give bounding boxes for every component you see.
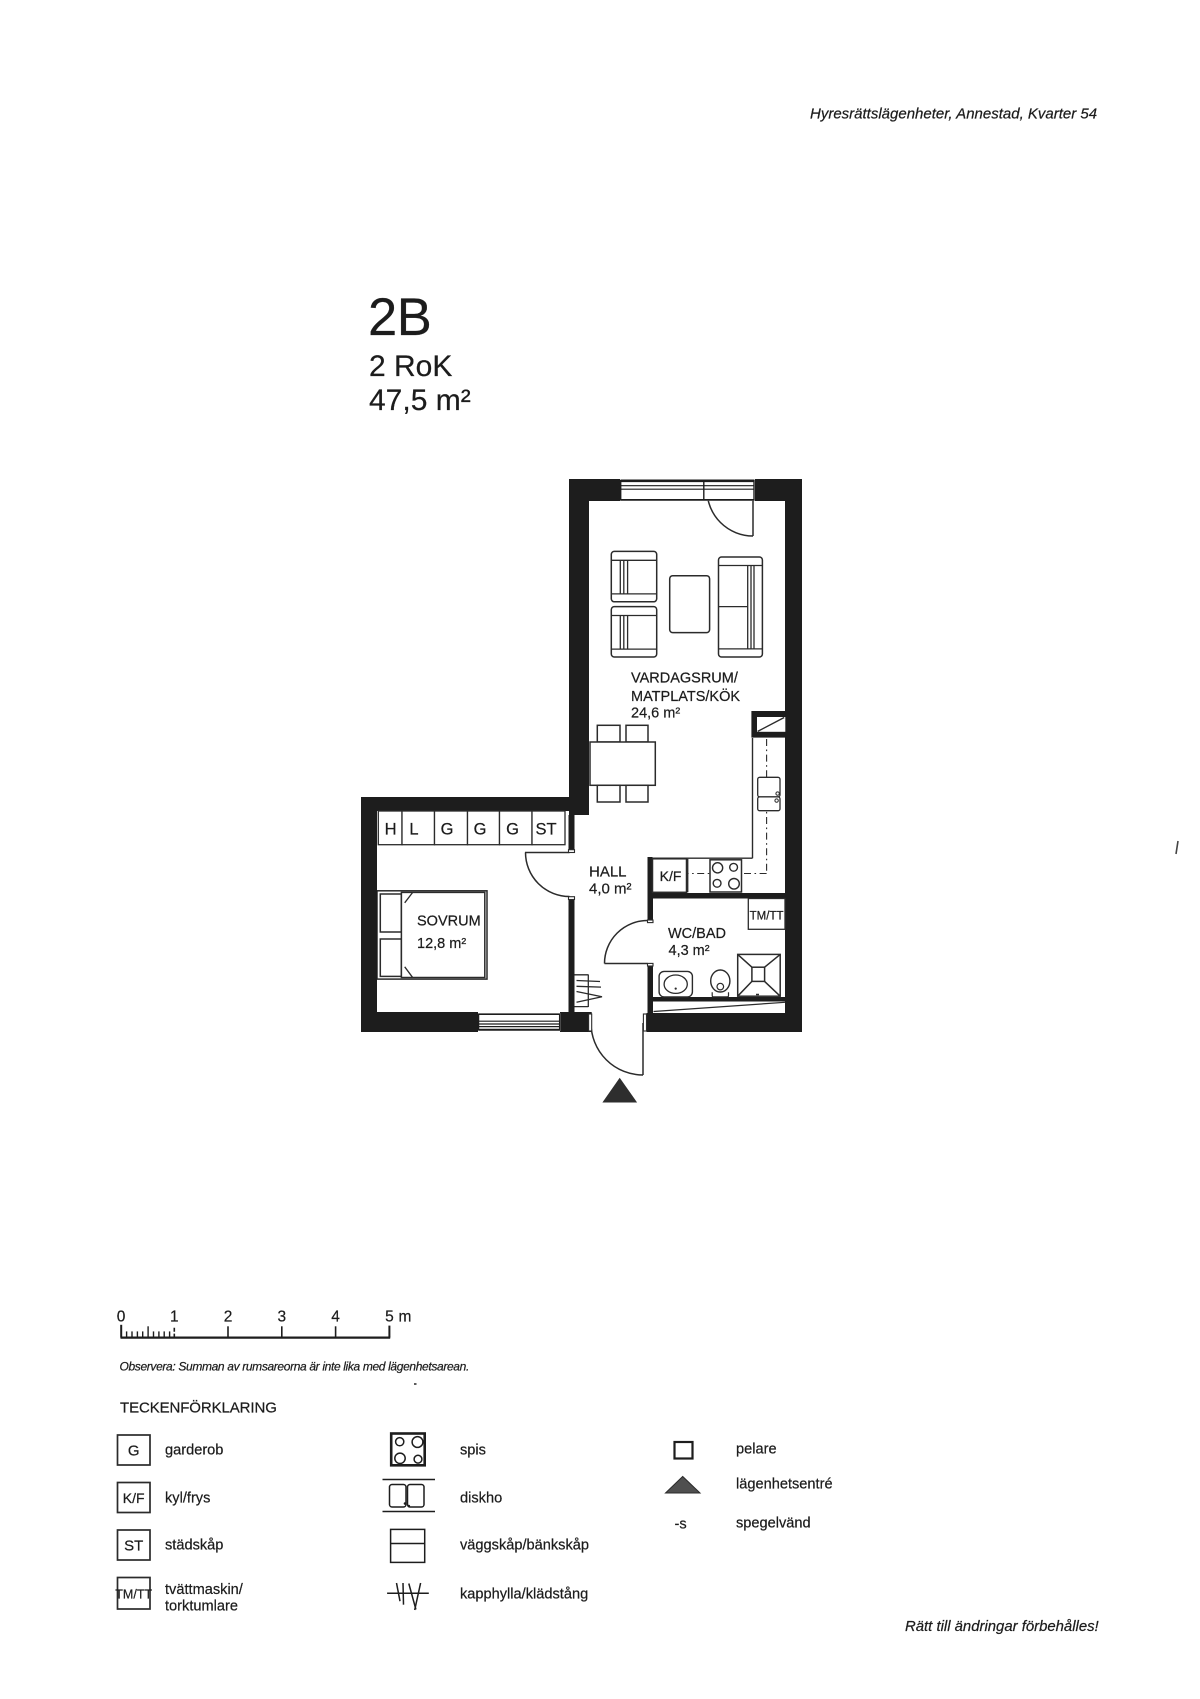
svg-text:12,8 m²: 12,8 m² [417, 936, 466, 952]
svg-text:G: G [506, 821, 519, 839]
svg-text:0: 0 [117, 1309, 126, 1326]
svg-text:G: G [441, 821, 454, 839]
svg-text:4,3 m²: 4,3 m² [669, 943, 710, 959]
svg-text:ST: ST [535, 821, 556, 839]
svg-text:Observera: Summan av rumsareor: Observera: Summan av rumsareorna är inte… [120, 1360, 469, 1374]
svg-text:4: 4 [331, 1309, 340, 1326]
svg-text:TM/TT: TM/TT [115, 1588, 152, 1602]
svg-text:m: m [399, 1309, 412, 1326]
svg-text:diskho: diskho [460, 1491, 502, 1507]
svg-text:garderob: garderob [165, 1443, 223, 1459]
svg-text:spegelvänd: spegelvänd [736, 1516, 811, 1532]
svg-text:H: H [385, 821, 397, 839]
svg-text:kapphylla/klädstång: kapphylla/klädstång [460, 1587, 588, 1603]
svg-text:47,5 m²: 47,5 m² [369, 384, 471, 417]
svg-text:K/F: K/F [660, 868, 682, 884]
svg-text:TM/TT: TM/TT [750, 911, 784, 923]
svg-text:G: G [474, 821, 487, 839]
svg-text:ST: ST [124, 1538, 143, 1555]
svg-text:G: G [128, 1443, 140, 1460]
svg-text:Hyresrättslägenheter, Annestad: Hyresrättslägenheter, Annestad, Kvarter … [810, 106, 1097, 123]
svg-text:städskåp: städskåp [165, 1538, 223, 1554]
svg-text:tvättmaskin/: tvättmaskin/ [165, 1582, 244, 1598]
svg-text:Rätt till ändringar förbehålle: Rätt till ändringar förbehålles! [905, 1619, 1099, 1635]
svg-text:3: 3 [277, 1309, 286, 1326]
svg-text:2B: 2B [368, 288, 431, 347]
svg-text:2: 2 [224, 1309, 233, 1326]
svg-text:SOVRUM: SOVRUM [417, 914, 481, 930]
svg-text:24,6 m²: 24,6 m² [631, 705, 680, 721]
svg-text:WC/BAD: WC/BAD [668, 926, 726, 942]
svg-text:1: 1 [170, 1309, 179, 1326]
svg-text:HALL: HALL [589, 864, 627, 881]
svg-text:K/F: K/F [123, 1490, 145, 1506]
svg-text:4,0 m²: 4,0 m² [589, 881, 632, 898]
svg-text:5: 5 [385, 1309, 394, 1326]
svg-text:MATPLATS/KÖK: MATPLATS/KÖK [631, 687, 740, 705]
svg-text:kyl/frys: kyl/frys [165, 1491, 210, 1507]
svg-text:torktumlare: torktumlare [165, 1599, 238, 1615]
svg-text:spis: spis [460, 1443, 486, 1459]
svg-text:väggskåp/bänkskåp: väggskåp/bänkskåp [460, 1538, 589, 1554]
svg-text:pelare: pelare [736, 1442, 777, 1458]
svg-text:-s: -s [675, 1517, 687, 1533]
svg-text:lägenhetsentré: lägenhetsentré [736, 1477, 833, 1493]
svg-text:2 RoK: 2 RoK [369, 350, 452, 383]
svg-text:VARDAGSRUM/: VARDAGSRUM/ [631, 671, 739, 687]
svg-text:TECKENFÖRKLARING: TECKENFÖRKLARING [120, 1399, 277, 1417]
svg-text:L: L [409, 821, 418, 839]
